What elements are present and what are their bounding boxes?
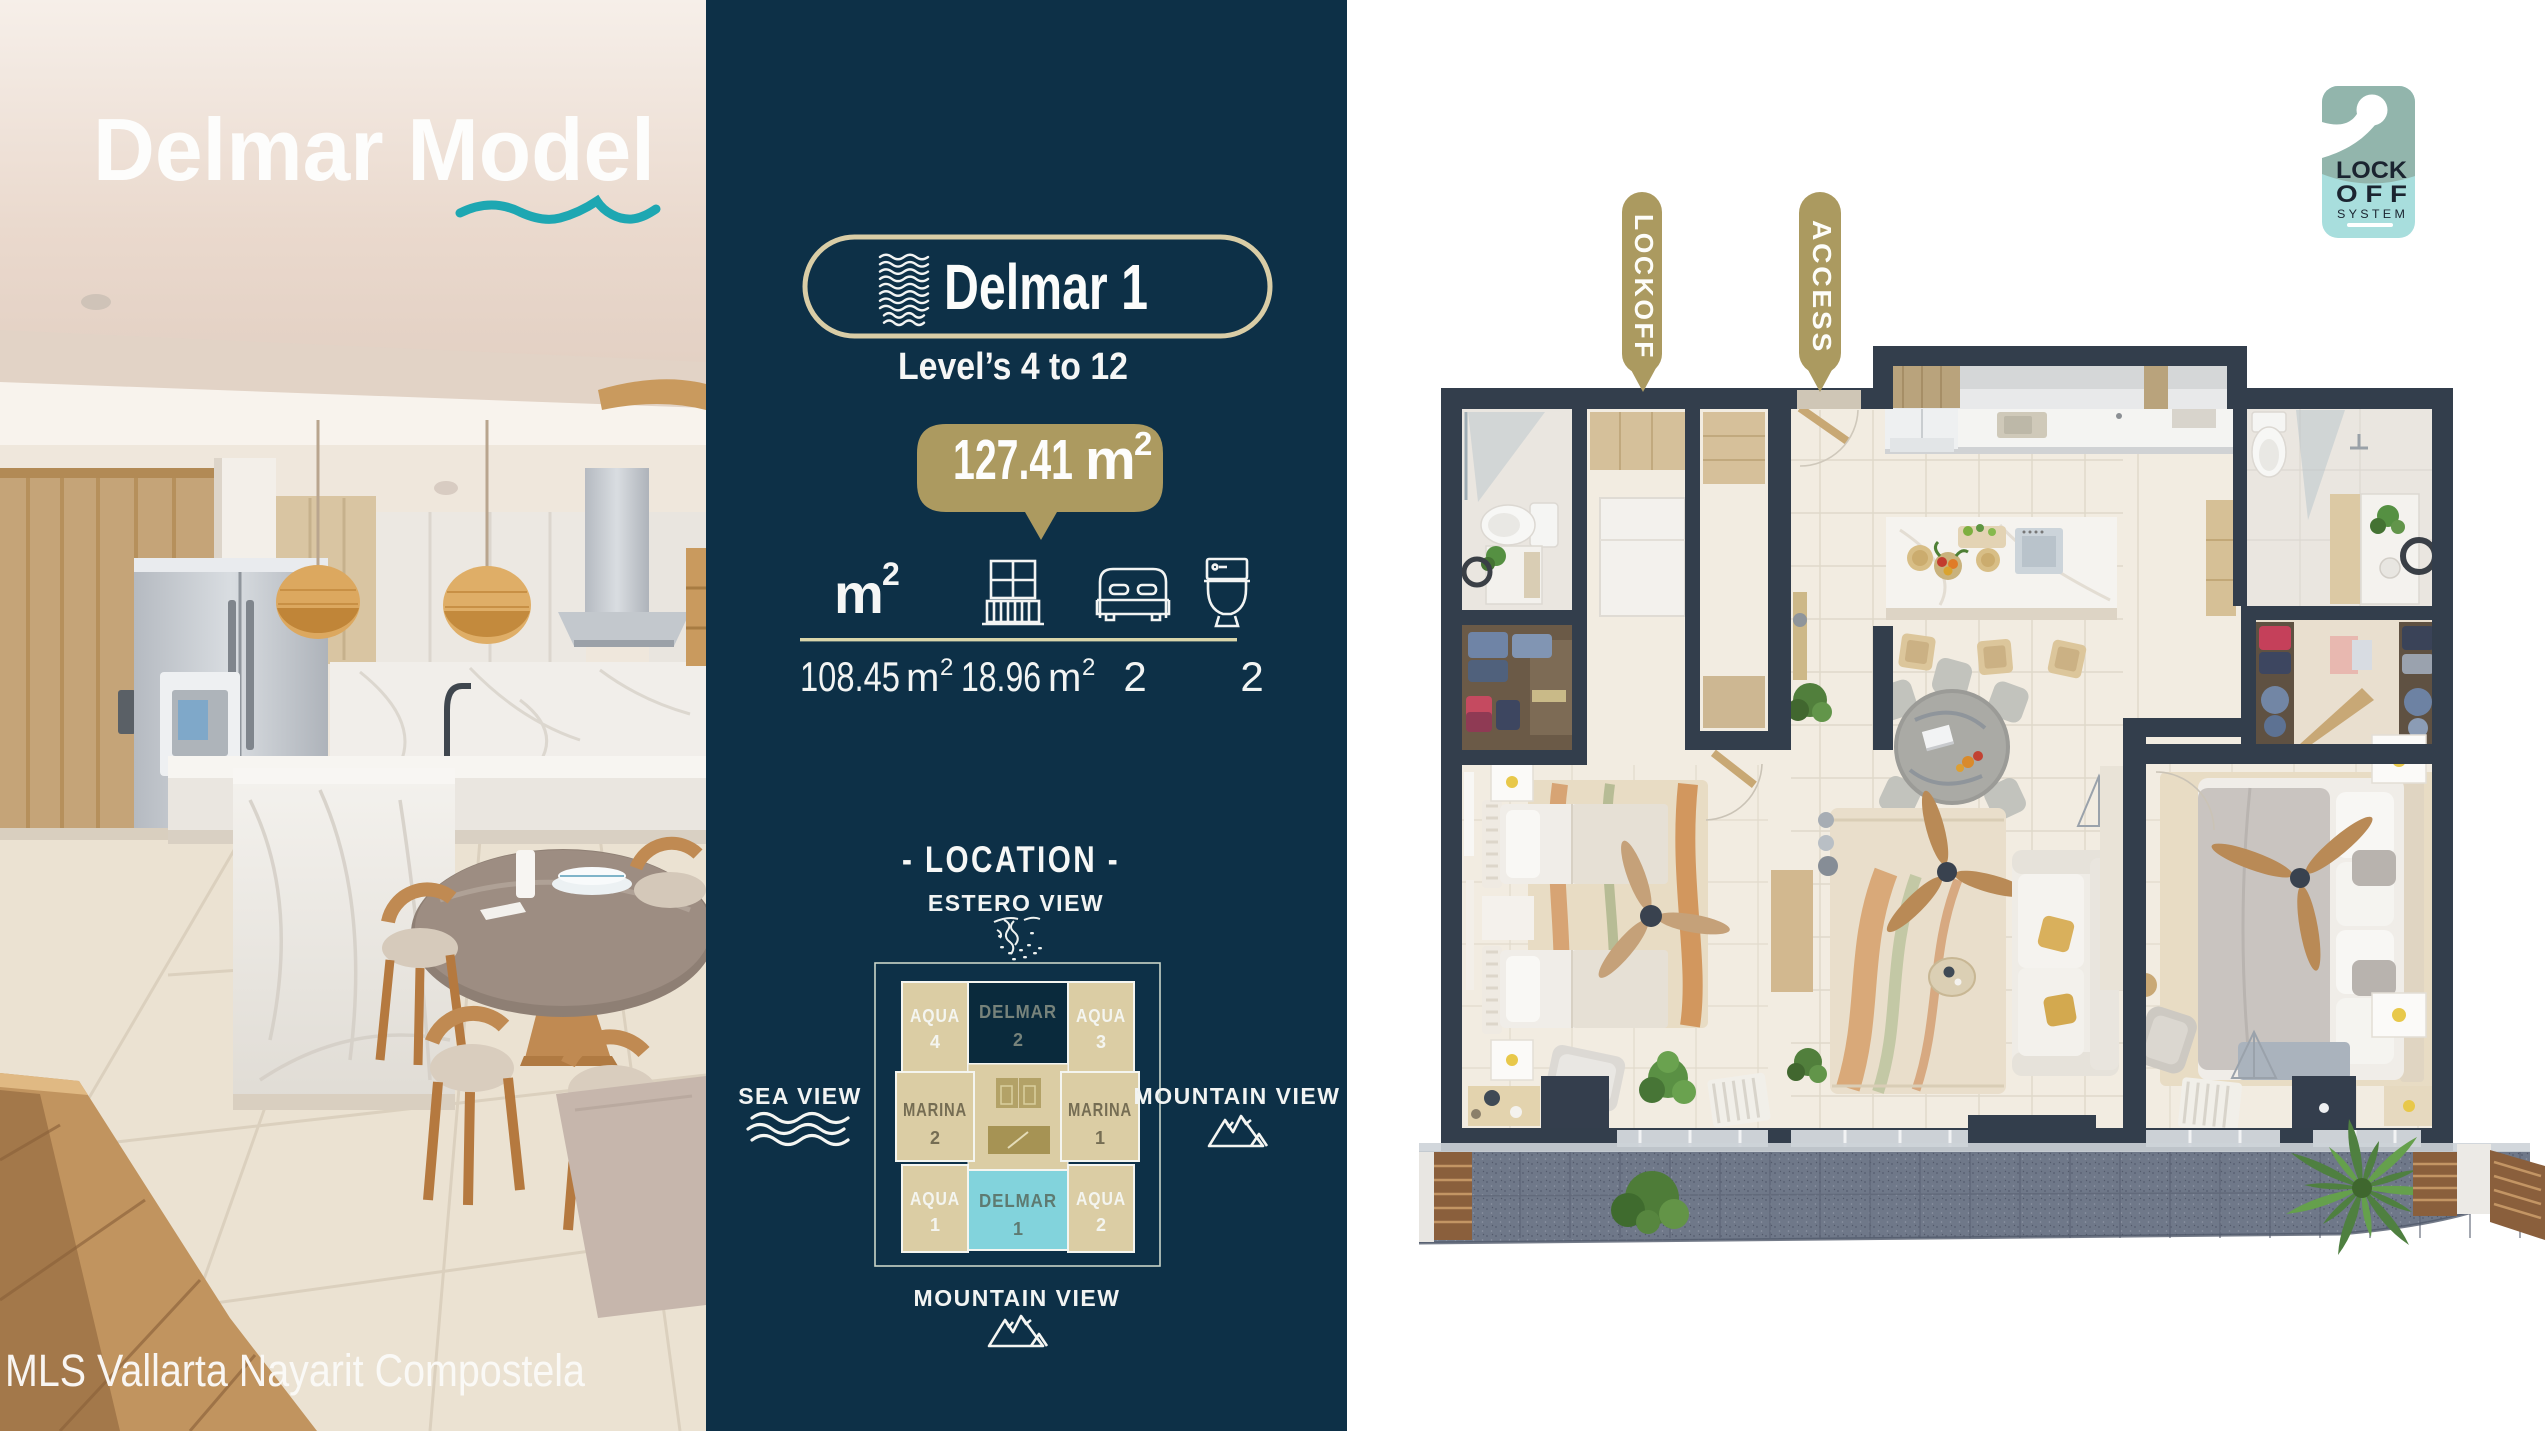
svg-text:2: 2 xyxy=(1013,1030,1023,1050)
svg-text:2: 2 xyxy=(940,654,953,681)
svg-text:MLS Vallarta Nayarit Compostel: MLS Vallarta Nayarit Compostela xyxy=(5,1345,586,1396)
svg-text:1: 1 xyxy=(1013,1219,1023,1239)
svg-text:m: m xyxy=(834,562,884,625)
svg-text:1: 1 xyxy=(930,1215,940,1235)
svg-text:AQUA: AQUA xyxy=(1076,1006,1126,1026)
svg-text:m: m xyxy=(1085,428,1136,492)
svg-text:MARINA: MARINA xyxy=(1068,1100,1132,1120)
svg-text:SEA VIEW: SEA VIEW xyxy=(738,1083,862,1109)
svg-text:m: m xyxy=(906,656,939,700)
svg-text:LOCKOFF: LOCKOFF xyxy=(1629,214,1659,360)
svg-text:- LOCATION -: - LOCATION - xyxy=(902,839,1120,880)
svg-text:O F F: O F F xyxy=(2336,181,2407,208)
svg-text:2: 2 xyxy=(1123,653,1146,700)
svg-text:4: 4 xyxy=(930,1032,940,1052)
svg-text:Delmar Model: Delmar Model xyxy=(93,100,655,199)
svg-text:1: 1 xyxy=(1095,1128,1105,1148)
svg-text:127.41: 127.41 xyxy=(953,428,1073,492)
svg-text:2: 2 xyxy=(930,1128,940,1148)
svg-text:MOUNTAIN VIEW: MOUNTAIN VIEW xyxy=(1134,1083,1341,1109)
svg-text:108.45: 108.45 xyxy=(800,653,900,700)
svg-text:Level’s 4 to 12: Level’s 4 to 12 xyxy=(898,346,1128,388)
svg-text:2: 2 xyxy=(1134,425,1152,462)
svg-text:LOCK: LOCK xyxy=(2336,157,2408,184)
svg-text:S Y S T E M: S Y S T E M xyxy=(2337,207,2405,221)
svg-text:AQUA: AQUA xyxy=(1076,1189,1126,1209)
svg-text:MOUNTAIN VIEW: MOUNTAIN VIEW xyxy=(914,1285,1121,1311)
svg-text:DELMAR: DELMAR xyxy=(979,1191,1057,1211)
svg-text:m: m xyxy=(1048,656,1081,700)
svg-text:2: 2 xyxy=(1240,653,1263,700)
svg-text:2: 2 xyxy=(1082,654,1095,681)
svg-text:2: 2 xyxy=(882,556,900,592)
svg-text:Delmar 1: Delmar 1 xyxy=(944,251,1148,323)
svg-text:AQUA: AQUA xyxy=(910,1189,960,1209)
svg-text:ACCESS: ACCESS xyxy=(1807,220,1837,354)
svg-text:3: 3 xyxy=(1096,1032,1106,1052)
svg-text:ESTERO VIEW: ESTERO VIEW xyxy=(928,890,1104,916)
svg-text:DELMAR: DELMAR xyxy=(979,1002,1057,1022)
svg-text:18.96: 18.96 xyxy=(961,653,1041,700)
svg-text:2: 2 xyxy=(1096,1215,1106,1235)
svg-text:MARINA: MARINA xyxy=(903,1100,967,1120)
svg-text:AQUA: AQUA xyxy=(910,1006,960,1026)
